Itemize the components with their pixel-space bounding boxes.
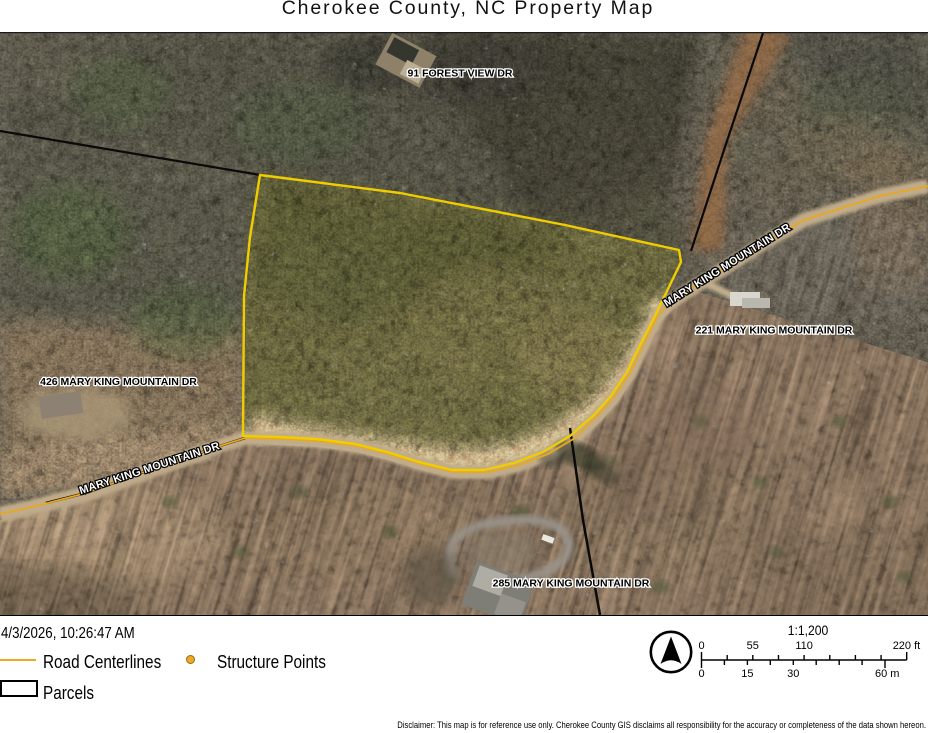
svg-text:55: 55 [747, 640, 759, 652]
svg-text:0: 0 [698, 668, 704, 680]
svg-text:221 MARY KING MOUNTAIN DR: 221 MARY KING MOUNTAIN DR [696, 325, 853, 337]
svg-text:15: 15 [741, 668, 753, 680]
svg-text:426 MARY KING MOUNTAIN DR: 426 MARY KING MOUNTAIN DR [40, 376, 197, 388]
svg-text:60 m: 60 m [875, 668, 899, 680]
svg-text:0: 0 [698, 640, 704, 652]
svg-text:285 MARY KING MOUNTAIN DR: 285 MARY KING MOUNTAIN DR [493, 578, 650, 590]
svg-text:30: 30 [787, 668, 799, 680]
svg-text:110: 110 [795, 640, 813, 652]
svg-text:220 ft: 220 ft [893, 640, 921, 652]
svg-text:91 FOREST VIEW DR: 91 FOREST VIEW DR [407, 68, 512, 80]
